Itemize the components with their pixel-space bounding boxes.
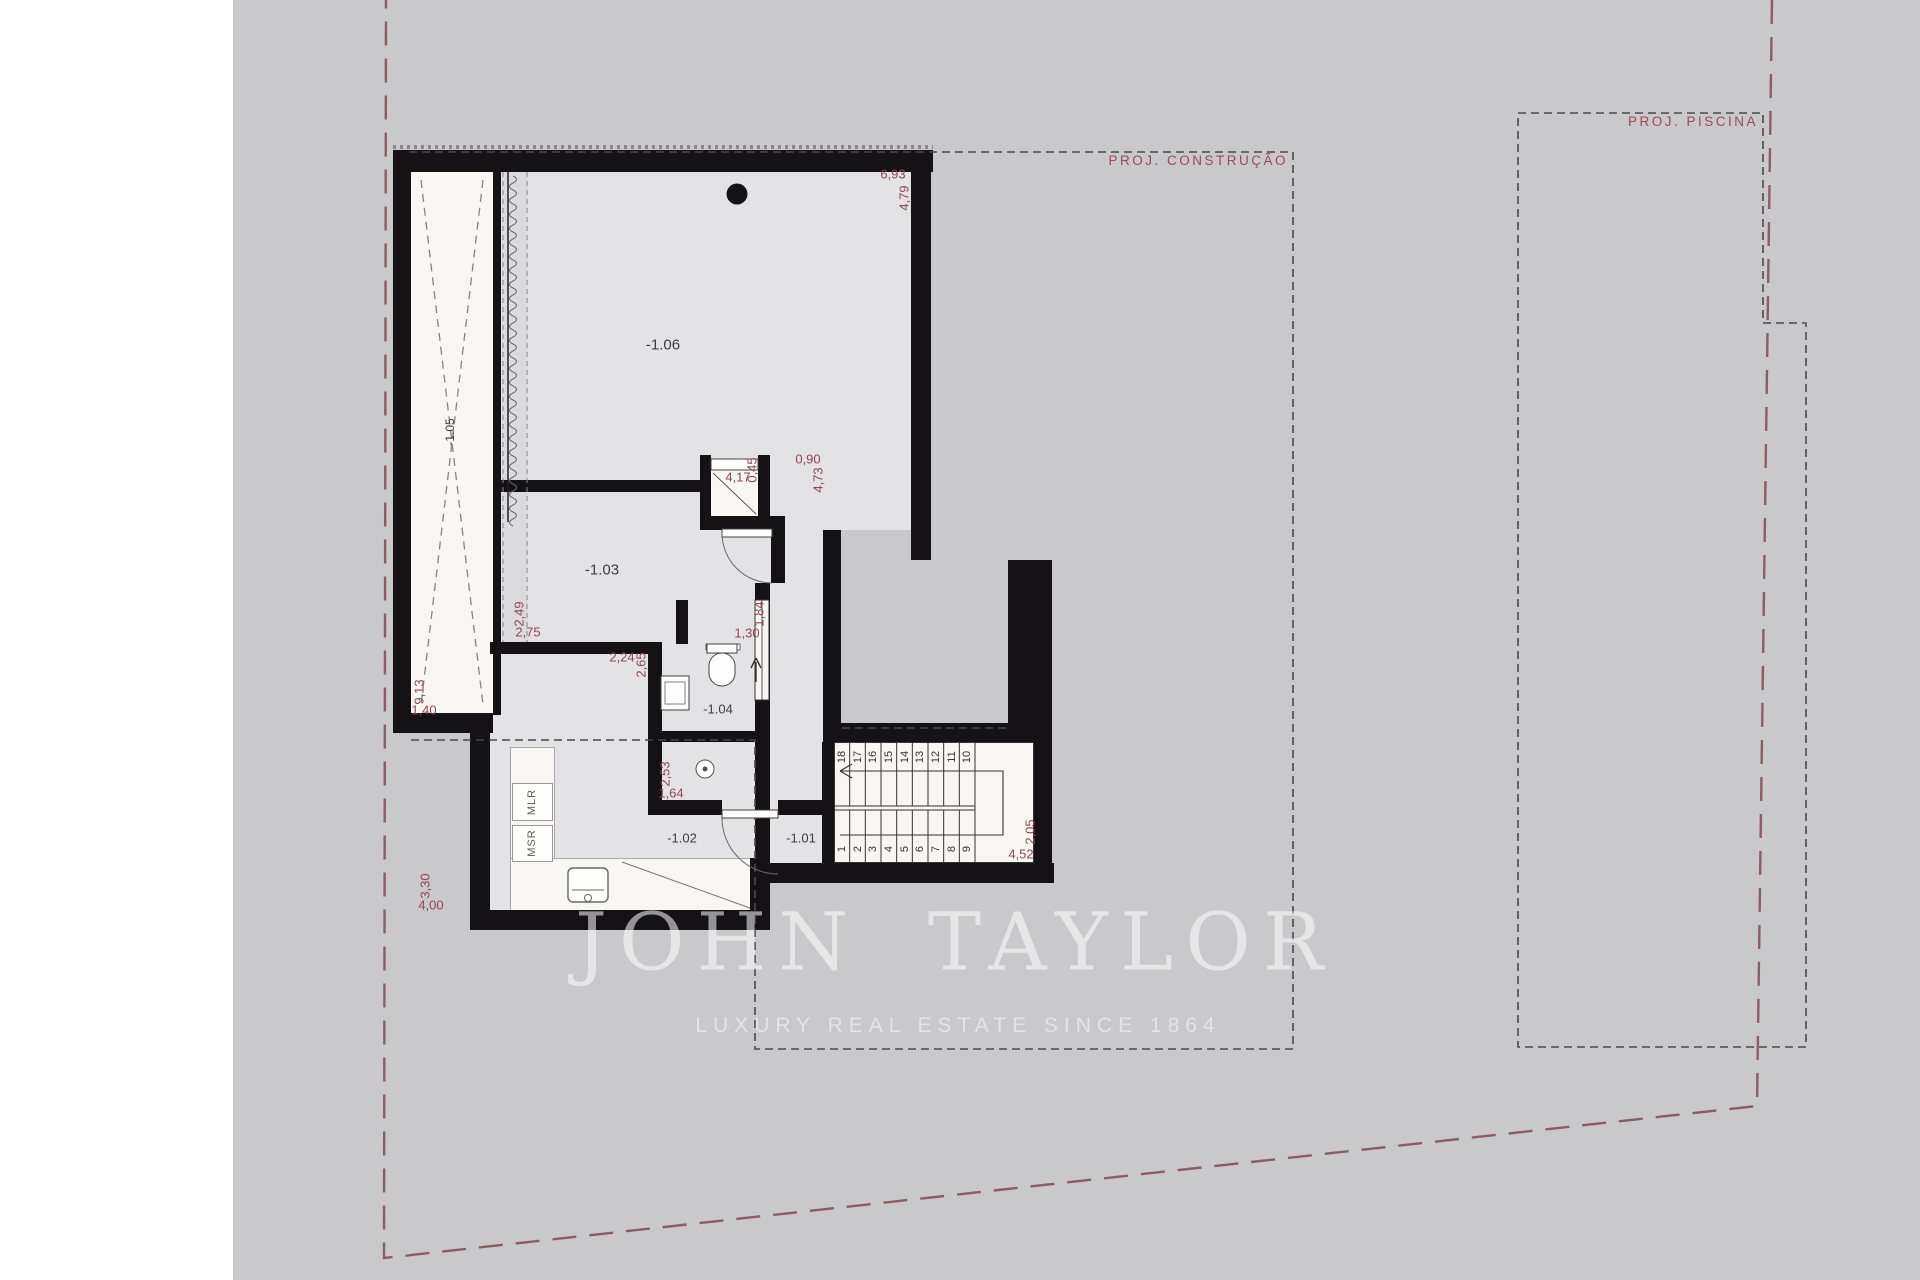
- dimension-label: 2,75: [515, 625, 540, 640]
- wall: [778, 800, 822, 815]
- dimension-label: 4,00: [418, 898, 443, 913]
- dimension-label: 0,45: [745, 457, 760, 482]
- dimension-label: 0,90: [795, 452, 820, 467]
- stair-step-number: 4: [883, 846, 895, 852]
- stair-step-number: 11: [946, 751, 958, 762]
- floor-plan-page: PROJ. CONSTRUÇÃO PROJ. PISCINA -1.06 -1.…: [0, 0, 1920, 1280]
- wall: [1034, 742, 1052, 883]
- wall: [911, 150, 931, 560]
- stair-step-number: 18: [836, 751, 848, 763]
- wall: [493, 150, 501, 715]
- dimension-label: 4,52: [1008, 847, 1033, 862]
- wall: [648, 800, 722, 815]
- wall: [700, 516, 785, 530]
- dimension-label: 1,30: [734, 626, 759, 641]
- dimension-label: 2,65: [634, 652, 649, 677]
- room-label-1-06: -1.06: [646, 337, 680, 354]
- wall: [393, 150, 933, 172]
- wall: [662, 731, 756, 742]
- stair-step-number: 12: [930, 751, 942, 763]
- room-label-1-04: -1.04: [703, 702, 733, 717]
- wall: [501, 480, 711, 492]
- washing-machine-label: MLR: [526, 789, 538, 815]
- dimension-label: 4,79: [897, 185, 912, 210]
- dimension-label: 1,40: [411, 703, 436, 718]
- wall: [1008, 560, 1052, 742]
- stair-step-number: 3: [867, 846, 879, 852]
- dimension-label: 2,05: [1023, 819, 1038, 844]
- room-label-1-01: -1.01: [786, 831, 816, 846]
- wall: [771, 530, 785, 583]
- top-wall-hatch: [393, 145, 933, 149]
- stair-step-number: 16: [867, 751, 879, 763]
- corridor-upper-floor: [770, 455, 911, 530]
- stair-step-number: 10: [961, 751, 973, 763]
- room-label-1-02: -1.02: [667, 831, 697, 846]
- pool-projection-label: PROJ. PISCINA: [1628, 114, 1758, 129]
- room-label-1-05: -1.05: [443, 418, 457, 445]
- construction-projection-label: PROJ. CONSTRUÇÃO: [1108, 153, 1288, 168]
- stair-step-number: 14: [899, 751, 911, 763]
- dimension-label: 2,49: [512, 601, 527, 626]
- wall: [676, 600, 688, 644]
- stair-step-number: 9: [961, 846, 973, 852]
- dimension-label: 2,53: [658, 761, 673, 786]
- dimension-label: 3,30: [418, 873, 433, 898]
- room-1-06-floor: [501, 172, 911, 482]
- dimension-label: 2,24: [609, 650, 634, 665]
- dimension-label: 1,64: [658, 786, 683, 801]
- stair-step-number: 1: [836, 846, 848, 852]
- watermark-title: JOHN TAYLOR: [575, 896, 1335, 989]
- dimension-label: 1,84: [752, 601, 767, 626]
- dimension-label: 4,73: [811, 467, 826, 492]
- stair-step-number: 6: [914, 846, 926, 852]
- wall: [823, 530, 841, 723]
- insulation-strip: [502, 172, 528, 642]
- stair-step-number: 13: [914, 751, 926, 763]
- wall: [470, 713, 490, 930]
- stair-step-number: 15: [883, 751, 895, 763]
- wall: [750, 863, 1054, 883]
- dimension-label: 9,13: [412, 679, 427, 704]
- wall: [393, 150, 411, 715]
- room-label-1-03: -1.03: [585, 562, 619, 579]
- dimension-label: 6,93: [880, 167, 905, 182]
- stair-step-number: 7: [930, 846, 942, 852]
- wall: [822, 742, 834, 863]
- stair-step-number: 5: [899, 846, 911, 852]
- stair-step-number: 2: [852, 846, 864, 852]
- stair-step-number: 8: [946, 846, 958, 852]
- watermark-subtitle: LUXURY REAL ESTATE SINCE 1864: [695, 1014, 1220, 1038]
- stair-step-number: 17: [852, 751, 864, 763]
- dryer-label: MSR: [526, 829, 538, 856]
